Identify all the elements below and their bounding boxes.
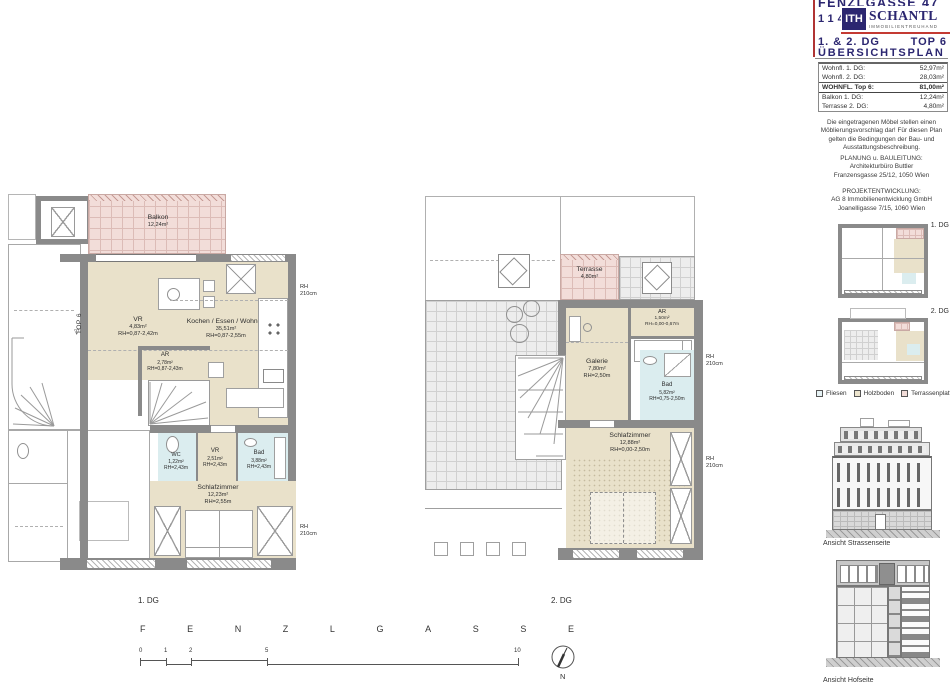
dining-chair — [203, 280, 215, 292]
mini2-window-row — [844, 376, 922, 380]
neighbor-rooms — [8, 430, 150, 562]
ground-floor — [832, 510, 932, 530]
desk-chair — [583, 323, 592, 332]
table-row: Wohnfl. 1. DG:52,97m² — [819, 64, 947, 73]
planter — [486, 542, 500, 556]
wardrobe — [670, 432, 692, 486]
street-elevation — [826, 418, 940, 538]
north-arrow — [548, 644, 578, 674]
stair-head — [879, 563, 895, 585]
north-arrow-icon — [548, 644, 578, 674]
elevator-car — [51, 207, 75, 237]
plan2-caption: 2. DG — [551, 596, 572, 605]
scale-tick-label: 0 — [139, 648, 142, 654]
attic-windows — [897, 565, 929, 583]
street-elevation-caption: Ansicht Strassenseite — [823, 540, 890, 547]
ar-label: AR 2,78m² RH=0,87-2,43m — [142, 352, 188, 372]
dashed-line — [14, 310, 74, 311]
mini1-window-row — [844, 290, 922, 294]
door-gap — [590, 420, 614, 428]
table-row-total: WOHNFL. Top 6:81,00m² — [819, 82, 947, 93]
court-elevation — [826, 556, 940, 674]
mini1-wohnen — [894, 239, 924, 273]
terrasse-parapet — [561, 255, 618, 260]
right-facade — [901, 586, 930, 658]
glass-facade — [836, 586, 888, 658]
shower — [664, 353, 691, 377]
scale-segment — [166, 664, 191, 665]
wall-top — [558, 300, 695, 308]
door-gap — [211, 425, 235, 433]
bad-label: Bad 5,82m² RH=0,75-2,50m — [642, 382, 692, 402]
wall-inner — [628, 308, 631, 420]
company-logo: ITH SCHANTL IMMOBILIENTREUHAND — [841, 6, 950, 34]
mini2-wall — [842, 362, 924, 363]
title-block: FENZLGASSE 47 1140 WIEN ITH SCHANTL IMMO… — [813, 0, 950, 689]
table-row: Terrasse 2. DG:4,80m² — [819, 102, 947, 111]
dining-chair — [203, 296, 215, 308]
spiral-stair-icon — [10, 336, 56, 428]
neighbor-wall — [9, 483, 67, 484]
rh-note: RH 210cm — [300, 284, 317, 297]
wc-toilet — [166, 436, 179, 453]
wall-ar — [138, 346, 210, 350]
north-label: N — [560, 672, 565, 681]
court-elevation-caption: Ansicht Hofseite — [823, 677, 874, 684]
winder-stair — [148, 380, 210, 426]
titleblock-red-rule — [813, 0, 815, 57]
entrance-arrow-icon: ▽ — [74, 328, 79, 336]
ar-label: AR 1,50m² RH=0,00-0,67m — [632, 309, 692, 328]
planter — [512, 542, 526, 556]
legend-terrassenplatten: Terrassenplatten — [901, 390, 950, 397]
scale-tick — [191, 658, 192, 666]
planning-block: PLANUNG u. BAULEITUNG: Architekturbüro B… — [816, 155, 947, 180]
winder-stair-icon — [516, 356, 565, 459]
stair-shaft — [888, 586, 901, 658]
terrace-table — [510, 324, 529, 343]
logo-name: SCHANTL — [869, 8, 938, 24]
titleblock-divider — [815, 58, 948, 59]
development-block: PROJEKTENTWICKLUNG: AG 8 Immobilienentwi… — [816, 188, 947, 213]
dashed-ceiling-line — [566, 342, 628, 343]
legend-holzboden: Holzboden — [854, 390, 895, 397]
attic-windows — [838, 446, 926, 453]
rh-note: RH 210cm — [300, 524, 317, 537]
planter — [434, 542, 448, 556]
window-band — [636, 549, 684, 559]
scale-tick — [518, 658, 519, 666]
mini-plan-2dg — [838, 318, 928, 384]
elevator-shaft — [36, 196, 92, 244]
wc-label: WC 1,22m² RH=2,43m — [156, 452, 196, 471]
attic-floor — [834, 442, 930, 456]
ground-line — [826, 530, 940, 538]
scale-tick — [140, 658, 141, 666]
ground-line — [826, 658, 940, 667]
planter — [460, 542, 474, 556]
terrace-chair — [506, 306, 523, 323]
rh-note: RH 210cm — [706, 456, 723, 469]
window-row — [837, 488, 927, 507]
mini1-wall — [842, 258, 924, 259]
attic-windows — [840, 565, 878, 583]
plan1-caption: 1. DG — [138, 596, 159, 605]
bed-split-line — [623, 493, 624, 543]
balkon-parapet — [89, 195, 225, 201]
street-name: F E N Z L G A S S E — [140, 624, 574, 634]
galerie-label: Galerie 7,80m² RH=2,50m — [568, 358, 626, 380]
logo-monogram-icon: ITH — [842, 8, 866, 30]
terrasse-label: Terrasse 4,80m² — [562, 266, 617, 281]
scale-tick-label: 10 — [514, 648, 521, 654]
window-row — [837, 463, 927, 482]
wardrobe — [670, 488, 692, 544]
window-band — [230, 254, 286, 262]
furniture-disclaimer: Die eingetragenen Möbel stellen einen Mö… — [816, 119, 947, 152]
scale-segment — [191, 660, 267, 661]
scale-segment — [267, 664, 518, 665]
vr-label: VR 4,83m² RH=0,87-2,42m — [108, 316, 168, 338]
mini1-balkon — [896, 228, 924, 239]
entrance-door — [875, 514, 886, 530]
dashed-ceiling-line — [88, 350, 288, 351]
dashed-ceiling-line — [170, 300, 288, 301]
terrassenplatten-swatch-icon — [901, 390, 908, 397]
bed-dashed — [590, 492, 656, 544]
mini1-bad — [902, 273, 916, 284]
balkon-label: Balkon 12,24m² — [113, 214, 203, 229]
scale-bar: 0 1 2 5 10 — [138, 648, 528, 672]
sofa — [226, 388, 284, 408]
elevator-head — [642, 262, 672, 294]
logo-tagline: IMMOBILIENTREUHAND — [869, 24, 938, 29]
armchair — [208, 362, 224, 378]
vr2-label: VR 2,51m² RH=2,43m — [196, 448, 234, 468]
window-band — [572, 549, 620, 559]
neighbor-wall — [67, 431, 68, 563]
skylight — [498, 254, 530, 288]
scale-tick-label: 2 — [189, 648, 192, 654]
bad-label: Bad 3,88m² RH=2,43m — [240, 450, 278, 470]
bad-sink — [244, 438, 257, 447]
holzboden-swatch-icon — [854, 390, 861, 397]
neighbor-roof — [8, 194, 36, 240]
area-table: Wohnfl. 1. DG:52,97m² Wohnfl. 2. DG:28,0… — [818, 62, 948, 112]
scale-tick-label: 5 — [265, 648, 268, 654]
legend-fliesen: Fliesen — [816, 390, 847, 397]
bed — [185, 510, 253, 558]
scale-tick — [267, 658, 268, 666]
floor-legend: Fliesen Holzboden Terrassenplatten — [816, 390, 948, 397]
attic-floor — [840, 427, 922, 442]
wardrobe — [257, 506, 293, 556]
attic-windows — [844, 431, 918, 439]
kitchen-shaft — [226, 264, 256, 294]
wall-right — [694, 300, 703, 560]
dashed-roof-line — [430, 260, 555, 261]
wc-fixture — [17, 443, 29, 459]
kitchen-sink — [263, 369, 284, 383]
bad-sink — [643, 356, 657, 365]
winder-stair-icon — [148, 380, 210, 426]
mini2-bad — [907, 344, 920, 355]
pillow-line — [186, 547, 252, 548]
scale-segment — [140, 660, 166, 661]
winder-stair — [515, 355, 566, 460]
mini2-terrasse — [894, 322, 910, 331]
roof-box — [888, 420, 910, 427]
scale-tick — [166, 658, 167, 666]
terrace-chair — [523, 300, 540, 317]
shower-line — [665, 354, 690, 376]
table-row: Wohnfl. 2. DG:28,03m² — [819, 73, 947, 82]
wall-inner — [236, 433, 238, 481]
mini-plan1-label: 1. DG — [931, 222, 949, 229]
balcony-door — [96, 254, 196, 262]
spiral-stair — [10, 336, 56, 428]
bed-split-line — [219, 511, 220, 557]
fliesen-swatch-icon — [816, 390, 823, 397]
mini2-roof-outline — [850, 308, 906, 319]
mini-plan-1dg — [838, 224, 928, 298]
mini1-wall — [882, 228, 883, 294]
dining-table — [158, 278, 200, 310]
roof-box — [860, 418, 874, 427]
wardrobe — [154, 506, 181, 556]
window-band — [86, 559, 156, 569]
mini-plan2-label: 2. DG — [931, 308, 949, 315]
main-floors — [832, 456, 932, 510]
logo-red-underline — [841, 32, 950, 34]
plan-sheet: FENZLGASSE 47 1140 WIEN ITH SCHANTL IMMO… — [0, 0, 950, 689]
wall-left — [80, 254, 88, 570]
scale-tick-label: 1 — [164, 648, 167, 654]
attic-floor — [836, 560, 930, 586]
window-band — [186, 559, 272, 569]
galerie-desk — [569, 316, 581, 342]
floor-plan-2dg: Terrasse 4,80m² AR 1,50m² RH=0,00-0,67m … — [390, 190, 720, 572]
schlafzimmer-label: Schlafzimmer 12,23m² RH=2,55m — [158, 484, 278, 506]
floor-plan-1dg: Balkon 12,24m² VR 4,83m² RH=0,87-2,42m K… — [8, 190, 338, 572]
table-row: Balkon 1. DG:12,24m² — [819, 93, 947, 102]
hob-icon — [266, 321, 282, 337]
wall-inner — [630, 336, 694, 339]
terrace-edge-line — [425, 508, 562, 509]
wall-band — [558, 420, 695, 428]
dashed-line — [15, 526, 63, 527]
rh-note: RH 210cm — [706, 354, 723, 367]
mini2-nachbar-terrasse — [844, 330, 878, 360]
